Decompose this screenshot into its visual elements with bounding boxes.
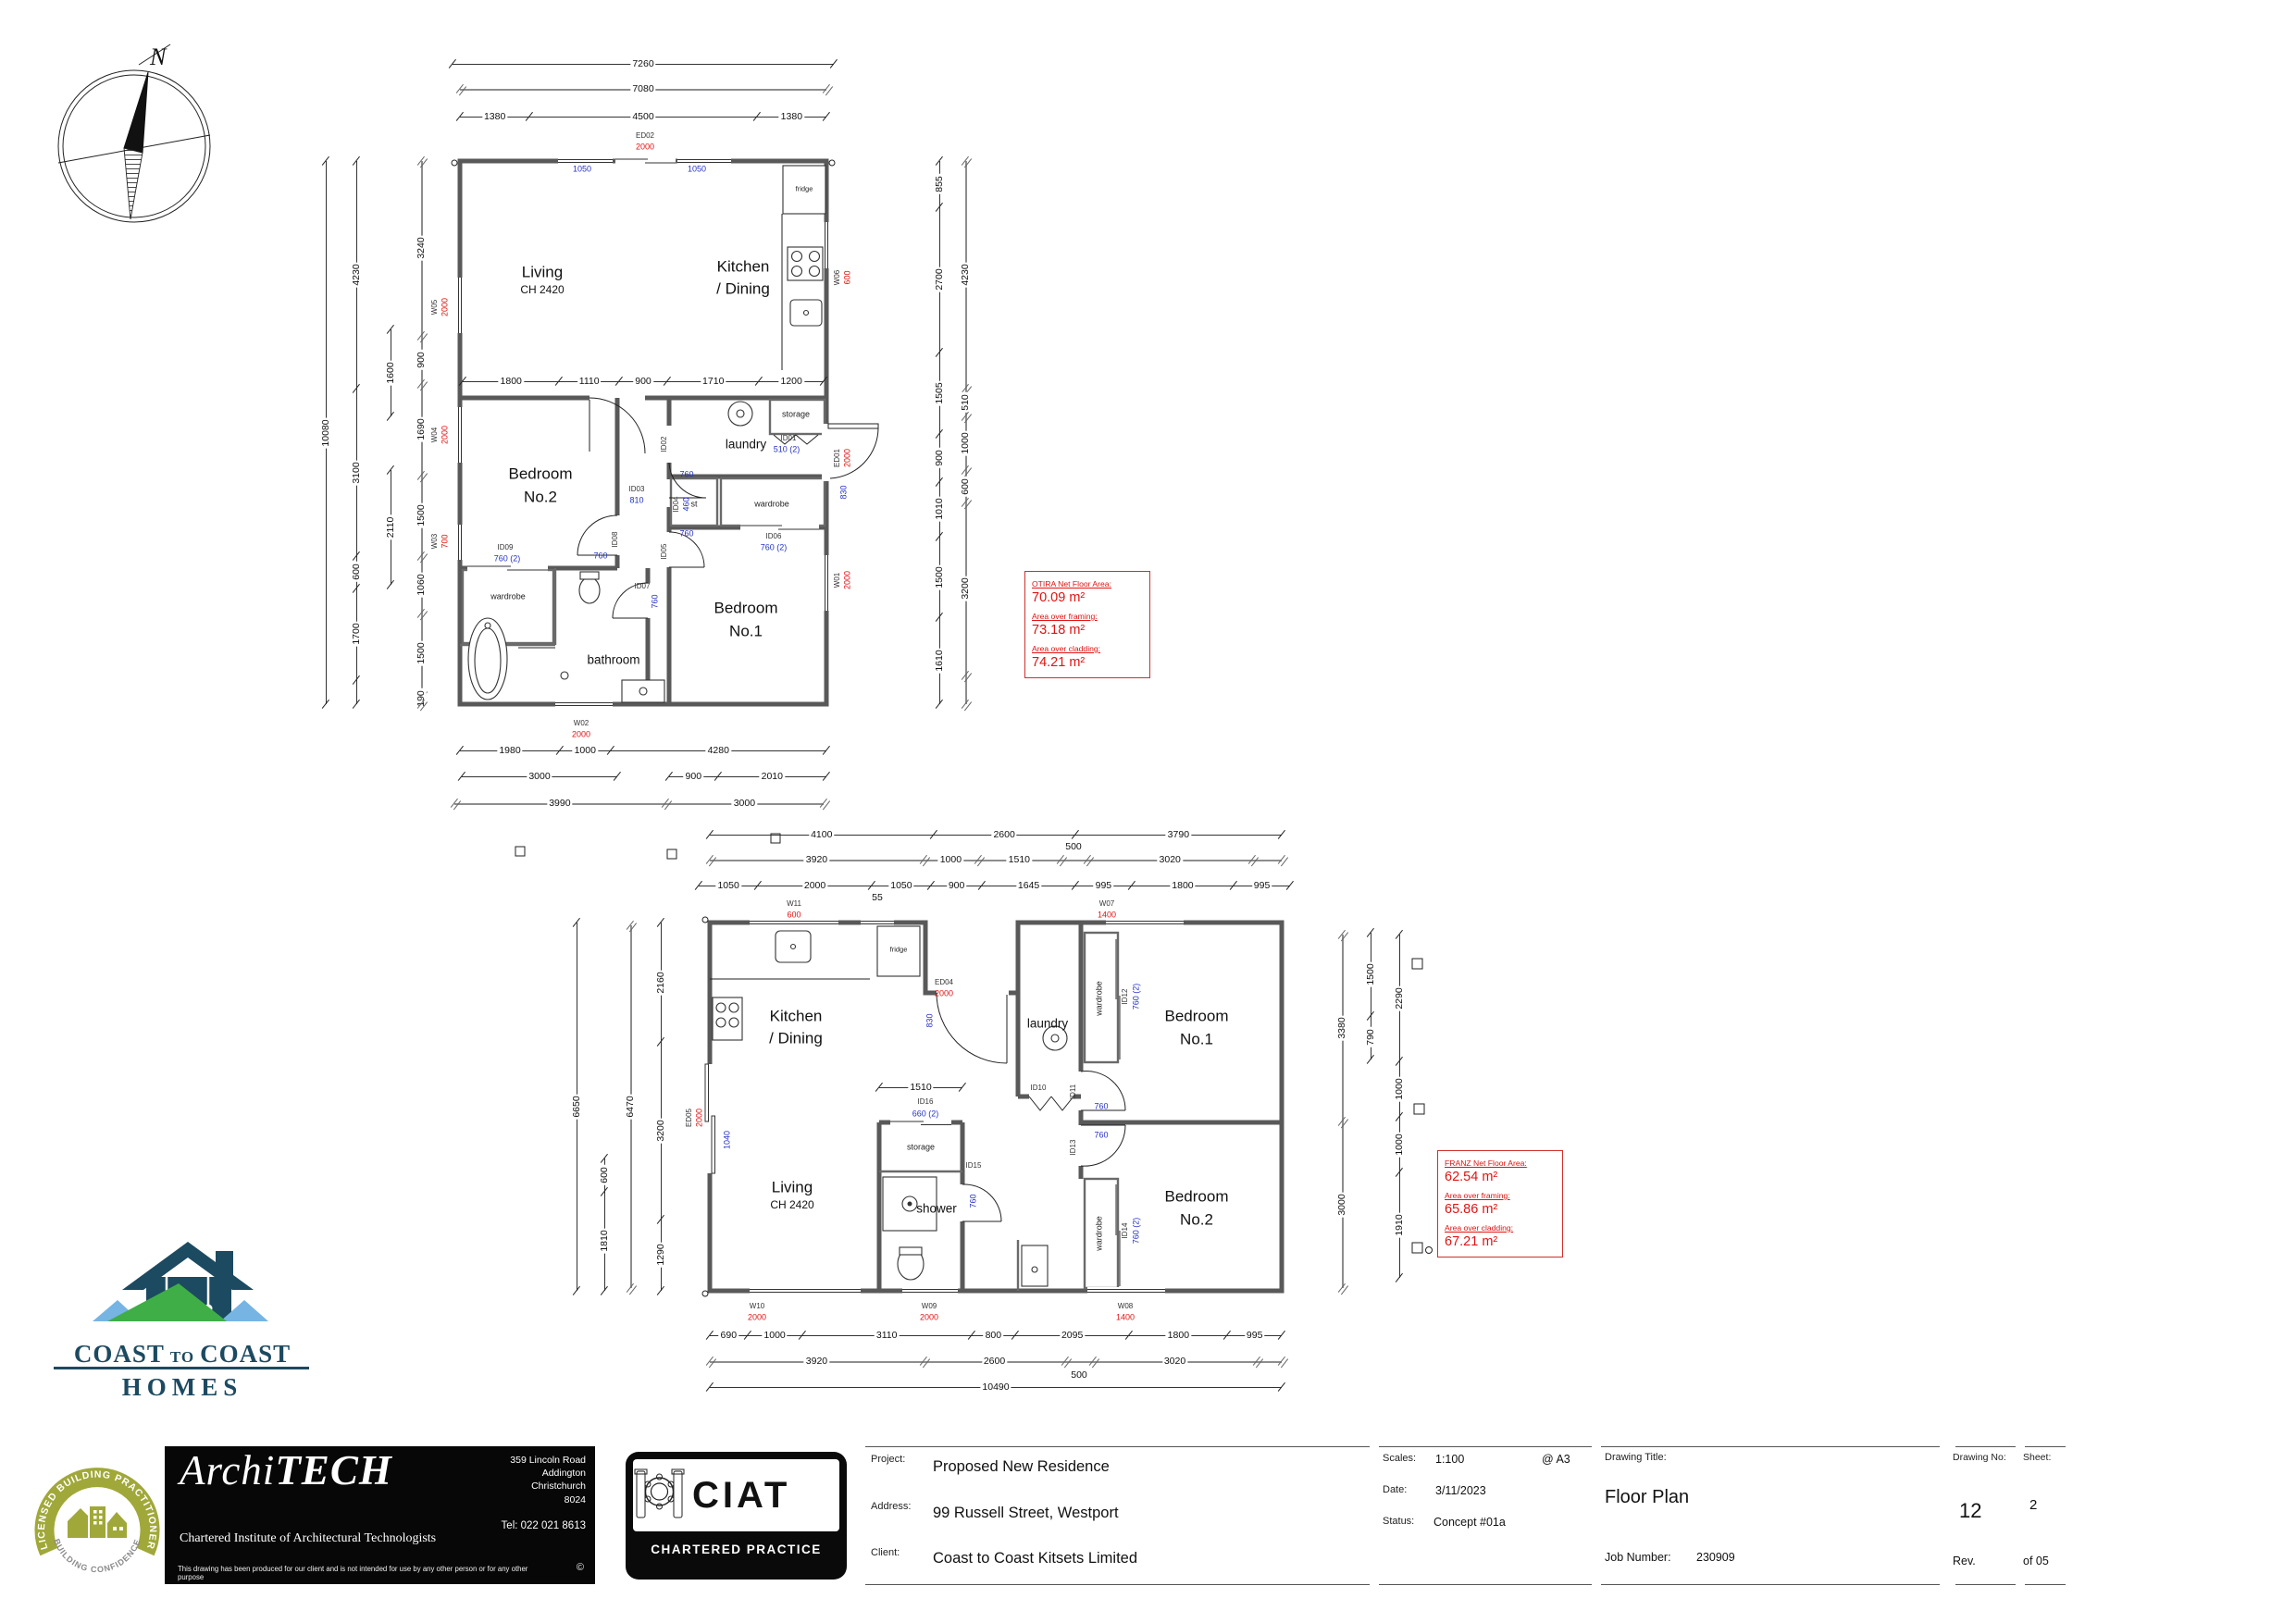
dimension-label: 900: [633, 377, 653, 387]
opening-width: 830: [840, 485, 849, 499]
logo-word: COAST: [200, 1340, 291, 1368]
opening-id: ED01: [834, 449, 841, 467]
opening-id: ID10: [1031, 1084, 1047, 1092]
opening-width: 760: [652, 594, 660, 608]
dimension-label: 1290: [656, 1243, 666, 1268]
opening-width: 460: [683, 497, 691, 511]
opening-id: W11: [787, 900, 801, 908]
opening-width: 1050: [688, 166, 706, 174]
opening-width: 760 (2): [1133, 1218, 1141, 1245]
opening-id: W01: [834, 573, 841, 588]
dimension-label: 2010: [760, 772, 785, 782]
dimension-label: 3200: [961, 576, 971, 601]
fixture-label: wardrobe: [1096, 981, 1104, 1016]
sheet-label: Sheet:: [2023, 1452, 2051, 1463]
opening-size: 2000: [696, 1109, 704, 1127]
opening-width: 760 (2): [494, 555, 521, 564]
opening-id: ID09: [498, 544, 514, 551]
titleblock-rule: [1379, 1584, 1592, 1585]
dimension-label: 2700: [935, 267, 945, 292]
ciat-wordmark: CIAT: [692, 1475, 790, 1517]
date-label: Date:: [1383, 1484, 1407, 1495]
opening-size: 600: [787, 911, 800, 920]
titleblock-rule: [865, 1446, 1370, 1447]
dimension-label: 1600: [386, 360, 396, 385]
fixture-label: storage: [782, 411, 810, 419]
dimension-label: 1505: [935, 380, 945, 405]
fixture-label: wardrobe: [1096, 1216, 1104, 1251]
dimension-label: 1610: [935, 648, 945, 673]
opening-id: ID14: [1122, 1223, 1129, 1239]
opening-size: 600: [844, 270, 852, 284]
opening-width: 760 (2): [761, 544, 788, 552]
opening-size: 2000: [636, 143, 654, 152]
area-label: Area over framing:: [1445, 1191, 1556, 1200]
room-label: / Dining: [716, 281, 770, 297]
room-label: laundry: [1027, 1017, 1068, 1030]
opening-id: W05: [431, 300, 439, 315]
room-label: Bedroom: [509, 466, 573, 482]
dimension-label: 3020: [1158, 855, 1183, 865]
dimension-label: 1980: [497, 746, 522, 756]
dimension-label: 995: [1245, 1331, 1265, 1341]
drawing-title: Floor Plan: [1605, 1487, 1689, 1508]
room-label: No.1: [729, 624, 763, 639]
opening-width: 760: [970, 1194, 978, 1208]
dimension-label: 2600: [991, 830, 1016, 840]
opening-width: 660 (2): [912, 1110, 939, 1119]
dimension-label: 995: [1252, 881, 1272, 891]
dimension-label: 1050: [715, 881, 740, 891]
dimension-label: 800: [984, 1331, 1004, 1341]
room-label: No.1: [1180, 1032, 1213, 1047]
opening-id: W08: [1118, 1303, 1133, 1310]
opening-size: 1400: [1116, 1314, 1135, 1322]
client-label: Client:: [871, 1547, 900, 1558]
dimension-label: 600: [352, 563, 362, 583]
opening-id: W07: [1099, 900, 1114, 908]
ciat-crest-icon: [633, 1464, 687, 1527]
room-label: shower: [916, 1202, 957, 1215]
dimension-label: 1500: [1366, 961, 1376, 986]
architech-logo-block: ArchiTECH 359 Lincoln RoadAddington Chri…: [165, 1446, 595, 1584]
opening-id: ID04: [673, 497, 680, 513]
fixture-label: fridge: [796, 185, 813, 192]
dimension-label: 6650: [572, 1094, 582, 1119]
annotation-layer: 7260708013804500138018001110900171012001…: [0, 0, 2296, 1623]
sheet-value: 2: [2029, 1497, 2037, 1513]
scales-value: 1:100: [1435, 1453, 1464, 1466]
dimension-label: 1800: [499, 377, 524, 387]
logo-word: TO: [165, 1348, 200, 1366]
room-label: Living: [772, 1180, 813, 1196]
copyright-icon: ©: [577, 1562, 584, 1573]
room-label: / Dining: [769, 1031, 823, 1047]
dimension-label: 1000: [573, 746, 598, 756]
fixture-label: st: [690, 501, 697, 509]
opening-width: 1050: [573, 166, 591, 174]
dimension-label: 500: [1069, 1370, 1089, 1381]
dimension-label: 55: [870, 893, 885, 903]
area-value: 70.09 m²: [1032, 590, 1143, 605]
room-label: Bedroom: [1165, 1009, 1229, 1024]
opening-size: 1400: [1098, 911, 1116, 920]
scales-label: Scales:: [1383, 1453, 1416, 1464]
dimension-label: 2290: [1395, 985, 1405, 1010]
dimension-label: 2110: [386, 515, 396, 540]
fixture-label: wardrobe: [490, 593, 526, 601]
dimension-label: 900: [416, 350, 427, 370]
dimension-label: 1710: [701, 377, 726, 387]
fixture-label: fridge: [890, 946, 908, 953]
opening-id: ID01: [781, 435, 797, 442]
dimension-label: 500: [1063, 842, 1084, 852]
dimension-label: 4230: [352, 262, 362, 287]
opening-size: 2000: [844, 571, 852, 589]
date-value: 3/11/2023: [1435, 1484, 1486, 1497]
area-summary-otira: OTIRA Net Floor Area: 70.09 m² Area over…: [1024, 571, 1150, 678]
dimension-label: 3990: [547, 799, 572, 809]
dimension-line: [699, 886, 1290, 886]
dimension-label: 1510: [908, 1083, 933, 1093]
address-value: 99 Russell Street, Westport: [933, 1505, 1119, 1522]
dimension-label: 4230: [961, 262, 971, 287]
dimension-label: 3240: [416, 236, 427, 261]
opening-size: 2000: [748, 1314, 766, 1322]
client-value: Coast to Coast Kitsets Limited: [933, 1550, 1137, 1567]
opening-width: 760: [679, 471, 693, 479]
area-summary-franz: FRANZ Net Floor Area: 62.54 m² Area over…: [1437, 1150, 1563, 1258]
architech-phone: Tel: 022 021 8613: [502, 1520, 586, 1531]
area-value: 65.86 m²: [1445, 1202, 1556, 1217]
titleblock-rule: [1379, 1446, 1592, 1447]
opening-size: 2000: [920, 1314, 938, 1322]
dimension-label: 4100: [809, 830, 834, 840]
dimension-label: 600: [600, 1165, 610, 1185]
titleblock-rule: [1601, 1584, 1940, 1585]
dimension-label: 3200: [656, 1118, 666, 1143]
opening-id: ID12: [1122, 989, 1129, 1005]
dimension-label: 900: [684, 772, 704, 782]
dimension-label: 1810: [600, 1229, 610, 1254]
dimension-label: 10490: [980, 1382, 1011, 1393]
dimension-label: 2095: [1060, 1331, 1085, 1341]
fixture-label: storage: [907, 1144, 935, 1152]
dimension-label: 3000: [1337, 1193, 1347, 1218]
room-label: Living: [522, 265, 563, 280]
sheet-of-label: of 05: [2023, 1555, 2049, 1567]
project-label: Project:: [871, 1454, 905, 1465]
dimension-label: 1510: [1007, 855, 1032, 865]
dimension-label: 10080: [321, 417, 331, 448]
opening-id: ID06: [766, 533, 782, 540]
dimension-label: 690: [719, 1331, 739, 1341]
titleblock-rule: [2025, 1446, 2066, 1447]
area-label: Area over cladding:: [1445, 1223, 1556, 1233]
status-value: Concept #01a: [1433, 1516, 1506, 1529]
opening-id: ED04: [935, 979, 953, 986]
opening-id: ID08: [612, 532, 619, 548]
job-number-value: 230909: [1696, 1551, 1735, 1564]
opening-width: 510 (2): [774, 446, 800, 454]
logo-rule: [54, 1367, 309, 1369]
dimension-line: [454, 803, 824, 805]
room-label: Kitchen: [717, 259, 770, 275]
room-label: No.2: [524, 489, 557, 505]
opening-width: 760: [1094, 1132, 1108, 1140]
opening-width: 760: [593, 552, 607, 561]
dimension-label: 3020: [1162, 1357, 1187, 1367]
fixture-label: wardrobe: [754, 501, 789, 509]
dimension-label: 3100: [352, 460, 362, 485]
architech-wordmark: ArchiTECH: [180, 1446, 392, 1494]
dimension-label: 900: [947, 881, 967, 891]
dimension-label: 1010: [935, 497, 945, 522]
dimension-label: 4280: [706, 746, 731, 756]
dimension-label: 995: [1094, 881, 1114, 891]
opening-id: ID03: [629, 486, 645, 493]
area-title: OTIRA Net Floor Area:: [1032, 579, 1143, 588]
drawing-no-value: 12: [1959, 1499, 1981, 1523]
opening-id: W10: [750, 1303, 764, 1310]
opening-id: ID02: [661, 437, 668, 452]
ceiling-height-label: CH 2420: [770, 1199, 813, 1210]
opening-id: ID16: [918, 1098, 934, 1106]
opening-id: W09: [922, 1303, 937, 1310]
opening-id: ID05: [661, 544, 668, 560]
opening-id: W06: [834, 270, 841, 285]
dimension-label: 1700: [352, 622, 362, 647]
opening-width: 760 (2): [1133, 984, 1141, 1010]
address-label: Address:: [871, 1501, 911, 1512]
opening-width: 760: [679, 530, 693, 539]
room-label: laundry: [726, 438, 766, 451]
dimension-label: 1500: [416, 641, 427, 666]
opening-size: 2000: [441, 426, 450, 444]
dimension-label: 900: [935, 448, 945, 468]
ciat-panel: CIAT: [633, 1459, 839, 1531]
area-value: 74.21 m²: [1032, 655, 1143, 670]
dimension-label: 790: [1366, 1028, 1376, 1048]
titleblock-rule: [1955, 1584, 2016, 1585]
dimension-label: 510: [961, 392, 971, 413]
area-value: 73.18 m²: [1032, 623, 1143, 638]
dimension-label: 2000: [802, 881, 827, 891]
opening-id: ID15: [966, 1162, 982, 1170]
opening-size: 2000: [844, 449, 852, 467]
dimension-label: 3000: [527, 772, 552, 782]
opening-id: W04: [431, 427, 439, 442]
opening-id: ED02: [636, 132, 654, 140]
dimension-label: 1500: [935, 564, 945, 589]
dimension-label: 1380: [482, 112, 507, 122]
dimension-label: 1110: [577, 377, 602, 387]
dimension-label: 1000: [1395, 1132, 1405, 1157]
opening-id: ID07: [635, 583, 651, 590]
opening-size: 700: [441, 534, 450, 548]
room-label: Bedroom: [1165, 1189, 1229, 1205]
logo-homes-wordmark: HOMES: [48, 1373, 316, 1402]
room-label: Bedroom: [714, 601, 778, 616]
dimension-line: [1342, 935, 1344, 1288]
dimension-label: 1645: [1016, 881, 1041, 891]
dimension-label: 1050: [888, 881, 913, 891]
dimension-label: 1910: [1395, 1212, 1405, 1237]
architech-disclaimer: This drawing has been produced for our c…: [178, 1565, 555, 1581]
area-title: FRANZ Net Floor Area:: [1445, 1158, 1556, 1168]
dimension-label: 2600: [982, 1357, 1007, 1367]
opening-size: 2000: [441, 298, 450, 316]
logo-coast-to-coast-wordmark: COASTTOCOAST: [48, 1340, 316, 1369]
dimension-label: 1380: [779, 112, 804, 122]
paper-size: @ A3: [1542, 1453, 1570, 1466]
dimension-label: 3920: [804, 1357, 829, 1367]
revision-label: Rev.: [1953, 1555, 1976, 1567]
dimension-label: 3000: [732, 799, 757, 809]
opening-id: W03: [431, 534, 439, 549]
area-value: 62.54 m²: [1445, 1170, 1556, 1184]
opening-width: 1040: [724, 1131, 732, 1149]
area-value: 67.21 m²: [1445, 1234, 1556, 1249]
ceiling-height-label: CH 2420: [520, 284, 564, 295]
dimension-label: 3790: [1166, 830, 1191, 840]
drawing-no-label: Drawing No:: [1953, 1452, 2006, 1463]
dimension-label: 1200: [778, 377, 803, 387]
area-label: Area over framing:: [1032, 612, 1143, 621]
logo-word: COAST: [74, 1340, 165, 1368]
dimension-label: 1000: [762, 1331, 787, 1341]
dimension-label: 3920: [804, 855, 829, 865]
room-label: No.2: [1180, 1212, 1213, 1228]
dimension-label: 6470: [626, 1094, 636, 1119]
opening-width: 760: [1094, 1103, 1108, 1111]
dimension-label: 855: [935, 174, 945, 194]
titleblock-rule: [1955, 1446, 2016, 1447]
dimension-label: 7260: [630, 59, 655, 69]
dimension-label: 1060: [416, 572, 427, 597]
architech-subtitle: Chartered Institute of Architectural Tec…: [180, 1531, 436, 1546]
opening-id: W02: [574, 720, 589, 727]
dimension-line: [710, 860, 1282, 861]
titleblock-rule: [1601, 1446, 1940, 1447]
room-label: bathroom: [587, 653, 639, 666]
dimension-label: 3380: [1337, 1016, 1347, 1041]
dimension-label: 1690: [416, 417, 427, 442]
lbp-badge: LICENSED BUILDING PRACTITIONER • BUILDIN…: [23, 1455, 171, 1603]
drawing-title-label: Drawing Title:: [1605, 1452, 1667, 1463]
opening-size: 2000: [572, 731, 590, 739]
area-label: Area over cladding:: [1032, 644, 1143, 653]
room-label: Kitchen: [770, 1009, 823, 1024]
ciat-logo-block: CIAT CHARTERED PRACTICE: [626, 1452, 847, 1580]
ciat-tagline: CHARTERED PRACTICE: [626, 1542, 847, 1556]
project-value: Proposed New Residence: [933, 1458, 1110, 1476]
opening-size: 2000: [935, 990, 953, 998]
dimension-label: 1000: [1395, 1076, 1405, 1101]
opening-id: ID13: [1070, 1140, 1077, 1156]
titleblock-rule: [2025, 1584, 2066, 1585]
dimension-label: 4500: [630, 112, 655, 122]
dimension-label: 600: [961, 477, 971, 497]
architech-address: 359 Lincoln RoadAddington Christchurch80…: [510, 1454, 586, 1506]
dimension-label: 1800: [1166, 1331, 1191, 1341]
dimension-label: 1000: [961, 430, 971, 455]
job-number-label: Job Number:: [1605, 1551, 1671, 1564]
dimension-label: 2160: [656, 970, 666, 995]
dimension-label: 3110: [875, 1331, 900, 1341]
titleblock-rule: [865, 1584, 1370, 1585]
dimension-label: 1500: [416, 502, 427, 527]
drawing-sheet: N: [0, 0, 2296, 1623]
opening-id: ED05: [686, 1109, 693, 1127]
dimension-label: 7080: [630, 84, 655, 94]
opening-id: ID11: [1070, 1084, 1077, 1099]
opening-width: 810: [629, 497, 643, 505]
dimension-label: 1800: [1170, 881, 1195, 891]
opening-width: 830: [926, 1013, 935, 1027]
status-label: Status:: [1383, 1516, 1414, 1527]
dimension-label: 1000: [938, 855, 963, 865]
